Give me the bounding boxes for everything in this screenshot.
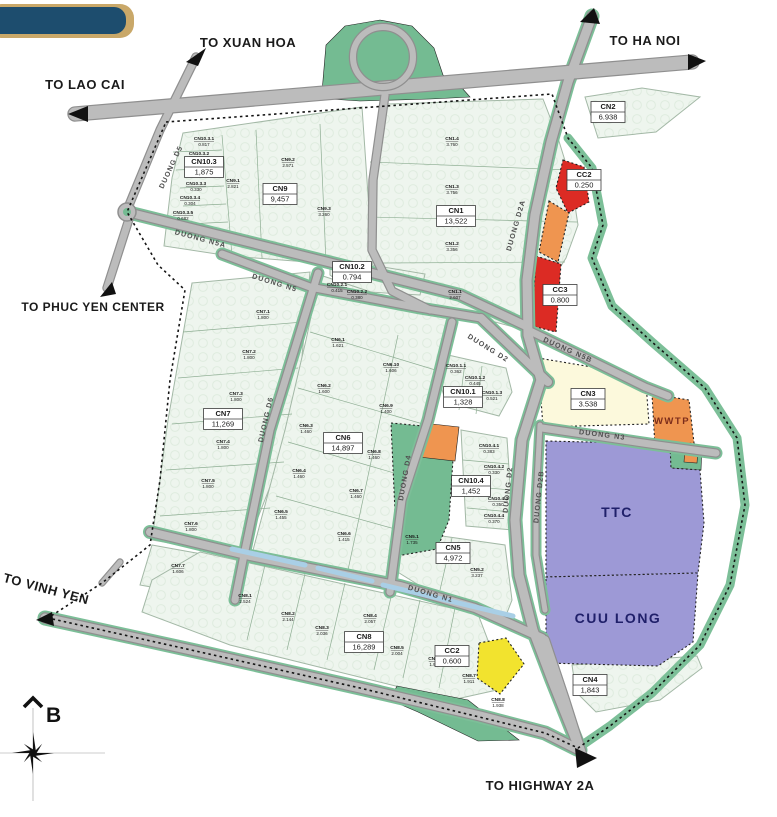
parcel-area: 13,522: [445, 217, 468, 226]
parcel-area: 1,452: [462, 487, 481, 496]
subparcel-name: CN1.1: [448, 289, 462, 295]
planning-map-canvas: DUONG D5DUONG N5ADUONG N5DUONG D2ADUONG …: [0, 0, 777, 817]
subparcel-area: 1.800: [243, 355, 255, 360]
subparcel-area: 1.800: [185, 527, 197, 532]
subparcel-name: CN8.1: [238, 593, 252, 599]
subparcel-label-cn6.6: CN6.61.415: [337, 531, 351, 542]
compass-spike: [12, 750, 33, 753]
subparcel-area: 2.607: [449, 295, 461, 300]
cuu-long-label: CUU LONG: [575, 610, 662, 626]
subparcel-name: CN5.2: [470, 567, 484, 573]
parcel-name: CN1: [448, 206, 463, 215]
parcel-area: 0.600: [443, 657, 462, 666]
subparcel-name: CN10.3.5: [173, 210, 194, 216]
subparcel-name: CN10.1.3: [482, 390, 503, 396]
parcel-name: CN2: [600, 102, 615, 111]
subparcel-area: 0.521: [486, 396, 498, 401]
parcel-label-cn9: CN99,457: [263, 184, 297, 205]
subparcel-area: 1.606: [172, 569, 184, 574]
subparcel-label-cn1.3: CN1.33.756: [445, 184, 459, 195]
parcel-name: CN8: [356, 632, 371, 641]
subparcel-label-cn7.1: CN7.11.800: [256, 309, 270, 320]
parcel-area: 1,875: [195, 168, 214, 177]
subparcel-area: 2.144: [282, 617, 294, 622]
subparcel-area: 1.400: [380, 409, 392, 414]
subparcel-area: 3.356: [446, 247, 458, 252]
parcel-label-cn4: CN41,843: [573, 675, 607, 696]
subparcel-area: 0.362: [450, 369, 462, 374]
subparcel-area: 0.383: [483, 449, 495, 454]
subparcel-label-cn7.7: CN7.71.606: [171, 563, 185, 574]
subparcel-area: 2.571: [282, 163, 294, 168]
subparcel-area: 1.735: [406, 540, 418, 545]
subparcel-name: CN8.4: [363, 613, 377, 619]
subparcel-label-cn1.2: CN1.23.356: [445, 241, 459, 252]
subparcel-label-cn9.3: CN9.33.260: [317, 206, 331, 217]
subparcel-label-cn6.5: CN6.51.455: [274, 509, 288, 520]
subparcel-label-cn7.6: CN7.61.800: [184, 521, 198, 532]
subparcel-name: CN10.1.2: [465, 375, 486, 381]
subparcel-area: 3.260: [318, 212, 330, 217]
subparcel-name: CN1.2: [445, 241, 459, 247]
subparcel-label-cn6.1: CN6.11.621: [331, 337, 345, 348]
subparcel-name: CN7.5: [201, 478, 215, 484]
subparcel-name: CN6.9: [379, 403, 393, 409]
parcel-label-cn3: CN33.538: [571, 389, 605, 410]
subparcel-name: CN7.6: [184, 521, 198, 527]
subparcel-area: 1.460: [350, 494, 362, 499]
subparcel-area: 2.004: [391, 651, 403, 656]
subparcel-area: 0.330: [488, 470, 500, 475]
subparcel-name: CN8.7: [462, 673, 476, 679]
subparcel-name: CN10.4.2: [484, 464, 505, 470]
subparcel-label-cn5.1: CN5.11.735: [405, 534, 419, 545]
subparcel-label-cn6.8: CN6.81.460: [367, 449, 381, 460]
subparcel-label-cn7.2: CN7.21.800: [242, 349, 256, 360]
compass-rose: B: [0, 698, 105, 801]
subparcel-area: 2.057: [364, 619, 376, 624]
subparcel-label-cn8.2: CN8.22.144: [281, 611, 295, 622]
subparcel-area: 1.621: [332, 343, 344, 348]
compass-spike: [30, 753, 33, 774]
subparcel-area: 0.304: [184, 201, 196, 206]
subparcel-area: 1.606: [385, 368, 397, 373]
subparcel-label-cn6.7: CN6.71.460: [349, 488, 363, 499]
subparcel-name: CN9.1: [226, 178, 240, 184]
subparcel-name: CN10.3.2: [189, 151, 210, 157]
subparcel-name: CN10.3.4: [180, 195, 201, 201]
subparcel-name: CN8.8: [491, 697, 505, 703]
subparcel-area: 1.911: [464, 679, 475, 684]
subparcel-name: CN10.3.1: [194, 136, 215, 142]
subparcel-name: CN6.10: [383, 362, 400, 368]
parcel-name: CN4: [582, 675, 598, 684]
subparcel-name: CN8.3: [315, 625, 329, 631]
subparcel-label-cn6.4: CN6.41.460: [292, 468, 306, 479]
subparcel-name: CN7.3: [229, 391, 243, 397]
corner-banner-logo: [0, 4, 134, 38]
subparcel-name: CN8.2: [281, 611, 295, 617]
direction-label-to-phuc-yen-center: TO PHUC YEN CENTER: [21, 300, 164, 314]
subparcel-area: 2.524: [239, 599, 251, 604]
subparcel-name: CN1.4: [445, 136, 459, 142]
parcel-area: 11,269: [212, 420, 234, 429]
subparcel-name: CN6.5: [274, 509, 288, 515]
parcel-area: 16,289: [353, 643, 376, 652]
parcel-label-cn10-3: CN10.31,875: [185, 157, 224, 178]
subparcel-label-cn7.5: CN7.51.800: [201, 478, 215, 489]
subparcel-area: 1.800: [230, 397, 242, 402]
parcel-label-cn7: CN711,269: [204, 409, 243, 430]
parcel-name: CC2: [576, 170, 591, 179]
subparcel-name: CN10.4.1: [479, 443, 500, 449]
subparcel-label-cn8.7: CN8.71.911: [462, 673, 476, 684]
parcel-label-cn8: CN816,289: [345, 632, 384, 653]
wwtp-label: WWTP: [654, 416, 690, 427]
direction-label-to-ha-noi: TO HA NOI: [610, 33, 681, 48]
subparcel-area: 1.460: [293, 474, 305, 479]
parcel-label-cn10-1: CN10.11,328: [444, 387, 483, 408]
parcel-area: 0.800: [551, 296, 570, 305]
parcel-area: 1,843: [581, 686, 600, 695]
subparcel-name: CN7.2: [242, 349, 256, 355]
parcel-name: CN9: [272, 184, 287, 193]
subparcel-label-cn8.5: CN8.52.004: [390, 645, 404, 656]
subparcel-area: 2.821: [227, 184, 239, 189]
north-arrow-icon: [24, 698, 42, 707]
subparcel-label-cn1.1: CN1.12.607: [448, 289, 462, 300]
subparcel-name: CN6.2: [317, 383, 331, 389]
direction-label-to-highway-2a: TO HIGHWAY 2A: [486, 778, 595, 793]
industrial-park-map: DUONG D5DUONG N5ADUONG N5DUONG D2ADUONG …: [0, 0, 777, 817]
parcel-area: 14,897: [332, 444, 355, 453]
subparcel-area: 1.415: [338, 537, 350, 542]
subparcel-area: 0.330: [190, 187, 202, 192]
direction-label-to-xuan-hoa: TO XUAN HOA: [200, 35, 296, 50]
subparcel-area: 2.036: [316, 631, 328, 636]
subparcel-label-cn1.4: CN1.43.760: [445, 136, 459, 147]
parcel-area: 4,972: [444, 554, 463, 563]
subparcel-name: CN10.3.3: [186, 181, 207, 187]
subparcel-area: 0.445: [469, 381, 481, 386]
subparcel-label-cn8.8: CN8.81.938: [491, 697, 505, 708]
parcel-name: CC3: [552, 285, 567, 294]
subparcel-area: 1.938: [492, 703, 504, 708]
parcel-area: 3.538: [579, 400, 598, 409]
subparcel-area: 0.817: [198, 142, 210, 147]
parcel-label-cn5: CN54,972: [436, 543, 470, 564]
subparcel-name: CN8.5: [390, 645, 404, 651]
subparcel-label-cn6.9: CN6.91.400: [379, 403, 393, 414]
subparcel-label-cn8.4: CN8.42.057: [363, 613, 377, 624]
subparcel-area: 3.756: [446, 190, 458, 195]
parcel-name: CN10.2: [339, 262, 364, 271]
parcel-name: CN7: [215, 409, 230, 418]
subparcel-area: 0.380: [351, 295, 363, 300]
subparcel-name: CN9.2: [281, 157, 295, 163]
subparcel-area: 1.800: [202, 484, 214, 489]
parcel-name: CN6: [335, 433, 350, 442]
parcel-area: 0.250: [575, 181, 594, 190]
subparcel-area: 3.760: [446, 142, 458, 147]
subparcel-area: 1.800: [217, 445, 229, 450]
parcel-label-cn6: CN614,897: [324, 433, 363, 454]
subparcel-name: CN6.6: [337, 531, 351, 537]
subparcel-area: 1.455: [275, 515, 287, 520]
roundabout-island: [123, 208, 131, 216]
subparcel-area: 1.800: [257, 315, 269, 320]
parcel-label-cn10-4: CN10.41,452: [452, 476, 491, 497]
subparcel-label-cn9.1: CN9.12.821: [226, 178, 240, 189]
parcel-name: CN10.4: [458, 476, 484, 485]
subparcel-name: CN10.4.4: [484, 513, 505, 519]
subparcel-label-cn8.1: CN8.12.524: [238, 593, 252, 604]
subparcel-name: CN10.2.2: [347, 289, 368, 295]
subparcel-label-cn6.2: CN6.21.600: [317, 383, 331, 394]
subparcel-area: 1.460: [368, 455, 380, 460]
compass-north-label: B: [46, 704, 61, 727]
parcel-area: 0.794: [343, 273, 362, 282]
subparcel-name: CN7.7: [171, 563, 185, 569]
subparcel-area: 0.682: [177, 216, 189, 221]
subparcel-name: CN9.3: [317, 206, 331, 212]
road-road-phuc-yen-spur: [107, 216, 130, 288]
parcel-name: CN3: [580, 389, 595, 398]
ttc-label: TTC: [601, 504, 633, 520]
subparcel-area: 0.350: [492, 502, 504, 507]
parcel-name: CC2: [444, 646, 459, 655]
parcel-area: 1,328: [454, 398, 473, 407]
subparcel-name: CN5.1: [405, 534, 419, 540]
parcel-label-cn1: CN113,522: [437, 206, 476, 227]
subparcel-name: CN10.4.3: [488, 496, 509, 502]
subparcel-area: 1.460: [300, 429, 312, 434]
subparcel-name: CN6.8: [367, 449, 381, 455]
compass-spike: [33, 753, 54, 756]
subparcel-label-cn7.4: CN7.41.800: [216, 439, 230, 450]
parcel-name: CN10.1: [450, 387, 475, 396]
subparcel-name: CN7.1: [256, 309, 270, 315]
subparcel-label-cn9.2: CN9.22.571: [281, 157, 295, 168]
subparcel-area: 1.600: [318, 389, 330, 394]
parcel-label-cc2: CC20.250: [567, 170, 601, 191]
parcel-area: 9,457: [271, 195, 290, 204]
parcel-label-cn2: CN26.938: [591, 102, 625, 123]
subparcel-name: CN1.3: [445, 184, 459, 190]
subparcel-label-cn5.2: CN5.23.237: [470, 567, 484, 578]
subparcel-area: 3.237: [471, 573, 483, 578]
subparcel-name: CN6.3: [299, 423, 313, 429]
subparcel-area: 0.370: [488, 519, 500, 524]
subparcel-label-cn7.3: CN7.31.800: [229, 391, 243, 402]
direction-label-to-vinh-yen: TO VINH YEN: [2, 570, 91, 607]
subparcel-name: CN6.1: [331, 337, 345, 343]
subparcel-name: CN10.1.1: [446, 363, 467, 369]
subparcel-name: CN6.7: [349, 488, 363, 494]
parcel-name: CN5: [445, 543, 460, 552]
parcel-area: 6.938: [599, 113, 618, 122]
subparcel-name: CN6.4: [292, 468, 306, 474]
subparcel-name: CN7.4: [216, 439, 230, 445]
subparcel-label-cn6.3: CN6.31.460: [299, 423, 313, 434]
parcel-name: CN10.3: [191, 157, 216, 166]
subparcel-label-cn8.3: CN8.32.036: [315, 625, 329, 636]
parcel-label-cn10-2: CN10.20.794: [333, 262, 372, 283]
direction-label-to-lao-cai: TO LAO CAI: [45, 77, 125, 92]
subparcel-area: 0.415: [331, 288, 343, 293]
parcel-label-cc3: CC30.800: [543, 285, 577, 306]
parcel-label-cc2: CC20.600: [435, 646, 469, 667]
